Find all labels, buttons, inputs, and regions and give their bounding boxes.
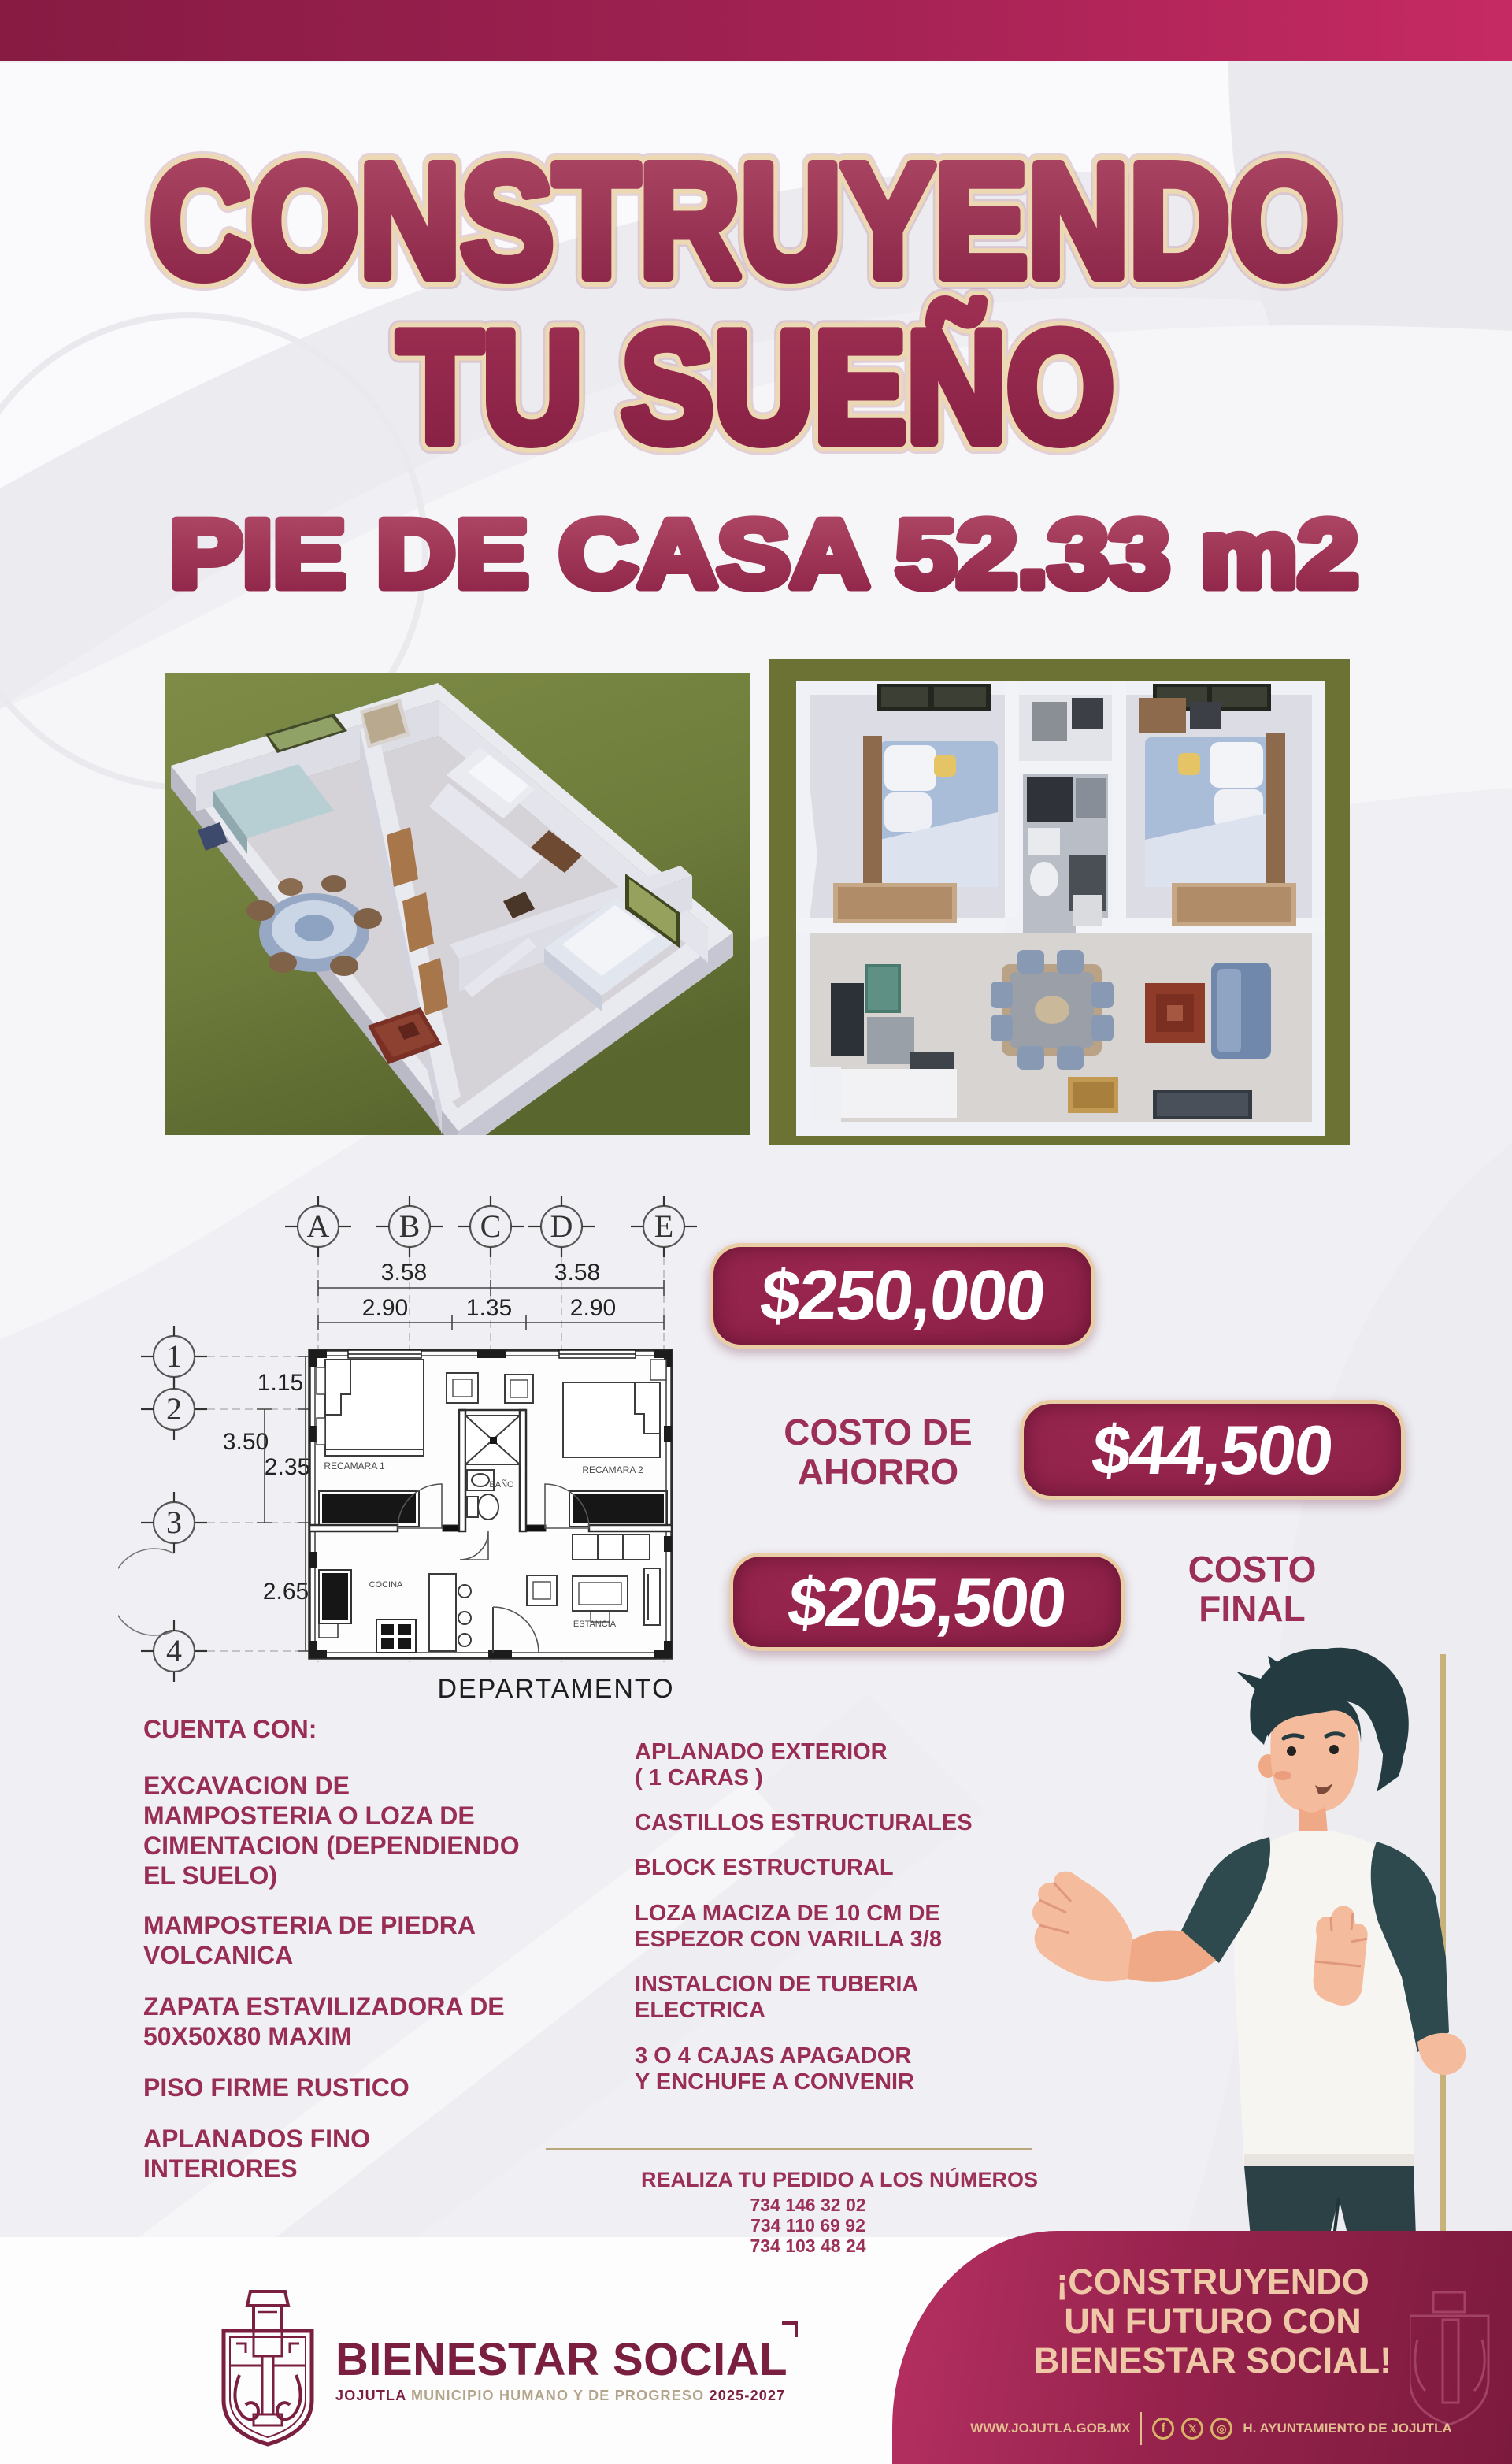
svg-text:PIE DE CASA 52.33 m2: PIE DE CASA 52.33 m2: [169, 500, 1358, 607]
svg-text:DEPARTAMENTO: DEPARTAMENTO: [437, 1674, 674, 1704]
svg-text:2.35: 2.35: [265, 1454, 310, 1480]
svg-text:C: C: [480, 1208, 502, 1244]
svg-text:3.50: 3.50: [223, 1429, 269, 1455]
svg-text:BAÑO: BAÑO: [489, 1479, 514, 1490]
svg-text:2.90: 2.90: [570, 1295, 616, 1321]
svg-text:1: 1: [166, 1338, 182, 1374]
svg-text:E: E: [654, 1208, 673, 1244]
svg-text:A: A: [307, 1208, 330, 1244]
svg-text:3.58: 3.58: [554, 1260, 600, 1286]
svg-text:3.58: 3.58: [381, 1260, 427, 1286]
svg-text:2.90: 2.90: [362, 1295, 408, 1321]
svg-text:CONSTRUYENDO: CONSTRUYENDO: [150, 131, 1339, 311]
svg-text:1.15: 1.15: [258, 1370, 303, 1396]
svg-text:3: 3: [166, 1505, 182, 1540]
svg-text:2: 2: [166, 1391, 182, 1427]
svg-text:4: 4: [166, 1633, 182, 1668]
svg-text:1.35: 1.35: [466, 1295, 512, 1321]
svg-text:2.65: 2.65: [263, 1579, 309, 1605]
svg-text:B: B: [399, 1208, 421, 1244]
svg-text:RECAMARA 2: RECAMARA 2: [582, 1464, 643, 1475]
svg-text:COCINA: COCINA: [369, 1580, 403, 1590]
svg-text:TU SUEÑO: TU SUEÑO: [398, 299, 1114, 475]
svg-text:D: D: [550, 1208, 573, 1244]
svg-text:RECAMARA 1: RECAMARA 1: [324, 1460, 385, 1471]
svg-text:ESTANCIA: ESTANCIA: [573, 1620, 617, 1629]
